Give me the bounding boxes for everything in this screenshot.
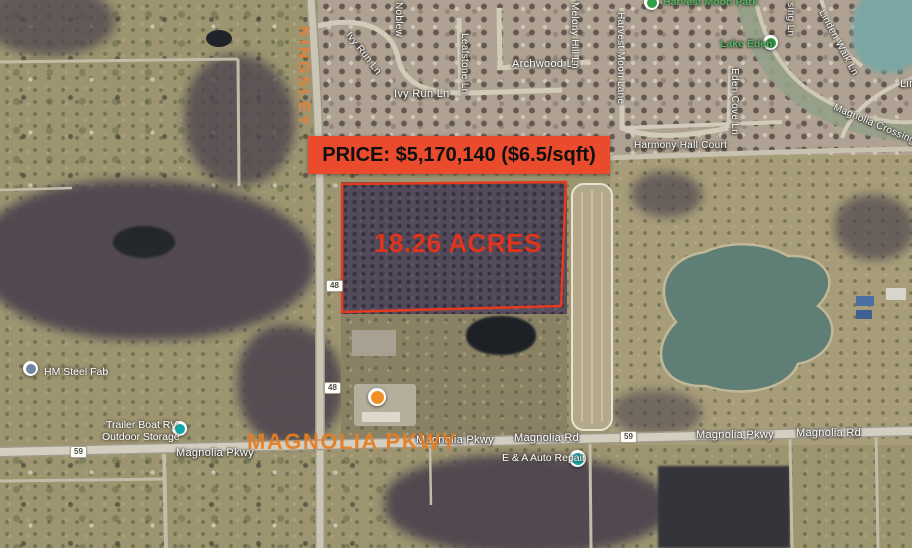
- satellite-map[interactable]: 48 48 59 59 Noblew Ivy Run Ln Leafstone …: [0, 0, 912, 548]
- poi-label-ea-auto-repair[interactable]: E & A Auto Repair: [502, 452, 585, 464]
- street-label: Noblew: [393, 2, 404, 37]
- route-shield-59: 59: [620, 431, 637, 443]
- poi-label-trailer-boat-line2[interactable]: Outdoor Storage: [102, 431, 180, 443]
- route-shield-48: 48: [324, 382, 341, 394]
- business-pin[interactable]: [23, 361, 38, 376]
- acreage-label: 18.26 ACRES: [374, 228, 542, 259]
- road-label: Magnolia Pkwy: [176, 447, 254, 459]
- street-highlight-kingsley: KINGSLEY: [294, 26, 312, 128]
- route-shield-59: 59: [70, 446, 87, 458]
- poi-label-harvest-moon-park[interactable]: Harvest Moon Park: [663, 0, 758, 8]
- road-label: Magnolia Rd: [514, 432, 579, 444]
- route-shield-48: 48: [326, 280, 343, 292]
- street-label: Lin: [900, 78, 912, 90]
- parcel-layer: [0, 0, 912, 548]
- street-label: Ivy Run Ln: [394, 88, 450, 100]
- street-label: Harmony Hall Court: [634, 140, 727, 151]
- poi-label-trailer-boat-line1[interactable]: Trailer Boat RV: [106, 419, 177, 431]
- street-label: Eden Cove Ln: [729, 68, 740, 135]
- road-highlight-magnolia-pkwy: MAGNOLIA PKWY: [247, 429, 458, 455]
- gas-station-pin[interactable]: [368, 388, 386, 406]
- street-label: Leafstone Ln: [459, 33, 470, 94]
- poi-label-lake-eden[interactable]: Lake Eden: [720, 38, 773, 50]
- road-label: Magnolia Pkwy: [696, 429, 774, 441]
- street-label: sing Ln: [785, 2, 796, 36]
- road-label: Magnolia Rd: [796, 427, 861, 439]
- price-banner: PRICE: $5,170,140 ($6.5/sqft): [308, 136, 610, 174]
- street-label: Melony Hill Ln: [569, 2, 580, 69]
- poi-label-hm-steel-fab[interactable]: HM Steel Fab: [44, 366, 108, 378]
- street-label: Harvest Moon Lane: [615, 12, 626, 104]
